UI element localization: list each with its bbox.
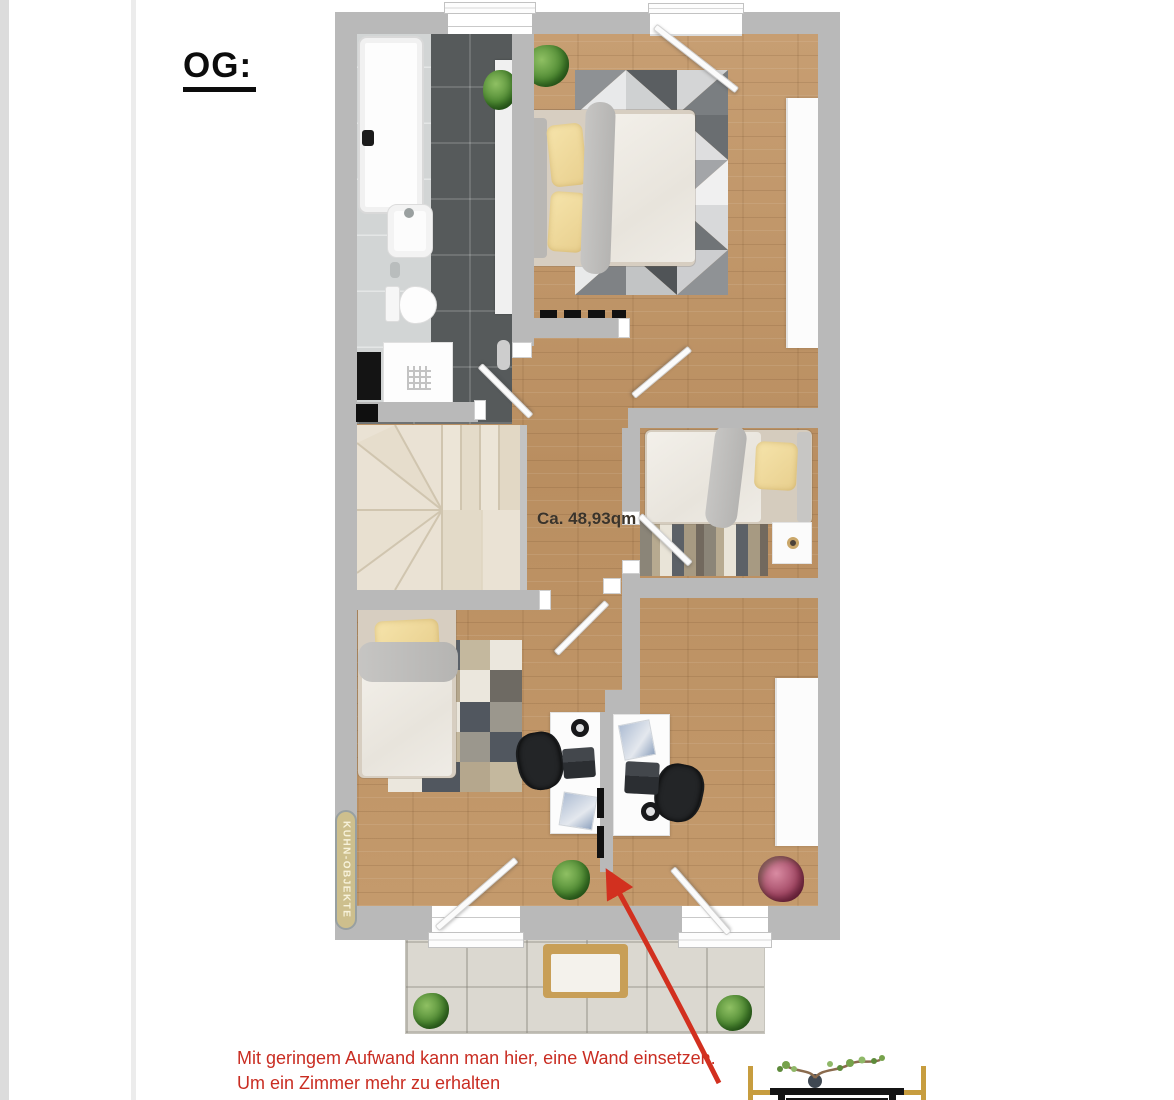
door-jamb	[622, 560, 640, 574]
floorplan-page: OG:	[0, 0, 1174, 1100]
door-jamb	[474, 400, 486, 420]
headphones-icon	[571, 719, 589, 737]
papers	[559, 792, 598, 831]
wall-small-bedroom-top	[628, 408, 818, 428]
towel-roll	[497, 340, 510, 370]
floor-level-title: OG:	[183, 46, 256, 92]
radiator-dash	[612, 310, 626, 318]
laptop	[562, 747, 596, 779]
wall-right	[818, 12, 840, 940]
laptop	[624, 761, 660, 795]
entry-sill-top	[648, 3, 744, 14]
balcony-threshold-left	[428, 932, 524, 948]
papers	[618, 719, 656, 760]
door-jamb	[512, 342, 532, 358]
annotation-line1: Mit geringem Aufwand kann man hier, eine…	[237, 1046, 716, 1071]
page-left-edge	[0, 0, 9, 1100]
bathroom-radiator	[357, 352, 381, 400]
bathroom-appliance	[356, 404, 378, 422]
watermark-text: KUHN-OBJEKTE	[341, 821, 352, 918]
floorplan: Ca. 48,93qm	[335, 12, 840, 940]
window-sill-top	[444, 2, 536, 14]
wall-stub-mark	[597, 788, 604, 818]
flowering-plant	[758, 856, 804, 902]
radiator-dash	[588, 310, 605, 318]
annotation-line2: Um ein Zimmer mehr zu erhalten	[237, 1071, 716, 1096]
soap-dish	[390, 262, 400, 278]
wall-stub-mark	[597, 826, 604, 858]
content-divider-line	[131, 0, 136, 1100]
radiator-dash	[564, 310, 581, 318]
wardrobe-top-bedroom	[786, 98, 820, 348]
bonsai-table-logo	[742, 1050, 932, 1100]
wall-under-stairs	[357, 590, 547, 610]
bench-cushion	[551, 954, 620, 992]
washbasin-faucet-icon	[404, 208, 414, 218]
bed-duvet	[603, 114, 695, 262]
nightstand-knob-icon	[787, 537, 799, 549]
headphones-icon	[641, 802, 660, 821]
area-label: Ca. 48,93qm	[537, 509, 636, 529]
gray-throw-blanket	[580, 102, 616, 275]
bathtub	[358, 36, 424, 214]
watermark-badge: KUHN-OBJEKTE	[335, 810, 357, 930]
toilet-tank	[385, 286, 400, 322]
wall-bedroom-hall	[534, 318, 630, 338]
wall-small-bedroom-bottom	[640, 578, 818, 598]
yellow-pillow	[546, 122, 588, 187]
bathtub-faucet-icon	[362, 130, 374, 146]
bathroom-window	[448, 12, 532, 34]
door-jamb	[618, 318, 630, 338]
wall-small-bedroom-left-lower	[622, 572, 640, 702]
annotation-text: Mit geringem Aufwand kann man hier, eine…	[237, 1046, 716, 1096]
yellow-pillow	[754, 441, 798, 491]
wall-bathroom-divider	[512, 34, 534, 346]
wall-top	[335, 12, 840, 34]
gray-throw-blanket	[358, 642, 458, 682]
staircase	[357, 425, 520, 590]
wall-left	[335, 12, 357, 940]
wall-small-bedroom-left-upper	[622, 428, 640, 515]
shower-drain-icon	[407, 366, 431, 390]
wall-jog	[605, 690, 640, 714]
bed-headboard	[797, 432, 811, 522]
wardrobe-bottom-room	[775, 678, 820, 846]
door-jamb	[539, 590, 551, 610]
door-jamb	[603, 578, 621, 594]
stairs-side-wall	[520, 425, 527, 590]
radiator-dash	[540, 310, 557, 318]
